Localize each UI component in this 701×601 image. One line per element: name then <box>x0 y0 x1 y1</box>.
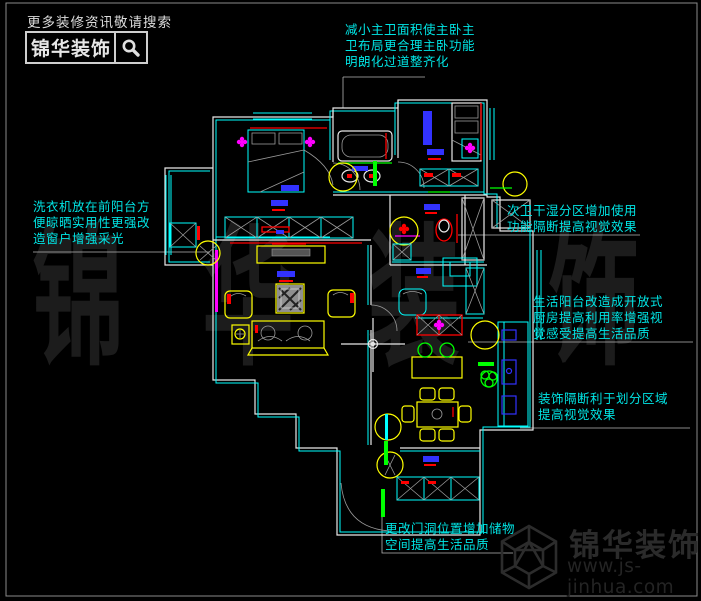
kitchen <box>412 315 528 426</box>
dining-area <box>375 388 471 478</box>
brand-name: 锦华装饰 <box>27 34 114 61</box>
study-nook <box>399 258 484 315</box>
annotation-partition: 装饰隔断利于划分区域 提高视觉效果 <box>538 391 668 423</box>
annotation-line: 减小主卫面积使主卧主 <box>345 22 475 38</box>
entry-storage <box>341 441 479 531</box>
annotation-kitchen: 生活阳台改造成开放式 厨房提高利用率增强视 觉感受提高生活品质 <box>533 294 663 342</box>
second-bathroom <box>390 192 484 260</box>
annotation-line: 洗衣机放在前阳台方 <box>33 199 150 215</box>
annotation-line: 卫布局更合理主卧功能 <box>345 38 475 54</box>
annotation-line: 明朗化过道整齐化 <box>345 54 475 70</box>
annotation-line: 觉感受提高生活品质 <box>533 326 663 342</box>
annotation-line: 造窗户增强采光 <box>33 231 150 247</box>
annotation-master-bath: 减小主卫面积使主卧主 卫布局更合理主卧功能 明朗化过道整齐化 <box>345 22 475 70</box>
second-bedroom <box>420 103 527 196</box>
annotation-line: 更改门洞位置增加储物 <box>385 521 515 537</box>
living-room <box>225 244 405 372</box>
annotation-line: 次卫干湿分区增加使用 <box>507 203 637 219</box>
annotation-entry: 更改门洞位置增加储物 空间提高生活品质 <box>385 521 515 553</box>
annotation-line: 生活阳台改造成开放式 <box>533 294 663 310</box>
cad-floorplan-page: { "header": { "tagline": "更多装修资讯敬请搜索", "… <box>0 0 701 601</box>
annotation-second-bath: 次卫干湿分区增加使用 功能隔断提高视觉效果 <box>507 203 637 235</box>
search-icon <box>116 38 146 58</box>
annotation-line: 便晾晒实用性更强改 <box>33 215 150 231</box>
master-bathroom <box>329 131 424 191</box>
annotation-line: 空间提高生活品质 <box>385 537 515 553</box>
brand-search-box: 锦华装饰 <box>25 31 148 64</box>
annotation-line: 功能隔断提高视觉效果 <box>507 219 637 235</box>
annotation-line: 提高视觉效果 <box>538 407 668 423</box>
annotation-washer: 洗衣机放在前阳台方 便晾晒实用性更强改 造窗户增强采光 <box>33 199 150 247</box>
annotation-line: 厨房提高利用率增强视 <box>533 310 663 326</box>
footer-url: www.js-jinhua.com <box>567 556 701 598</box>
annotation-line: 装饰隔断利于划分区域 <box>538 391 668 407</box>
header-tagline: 更多装修资讯敬请搜索 <box>27 11 172 31</box>
